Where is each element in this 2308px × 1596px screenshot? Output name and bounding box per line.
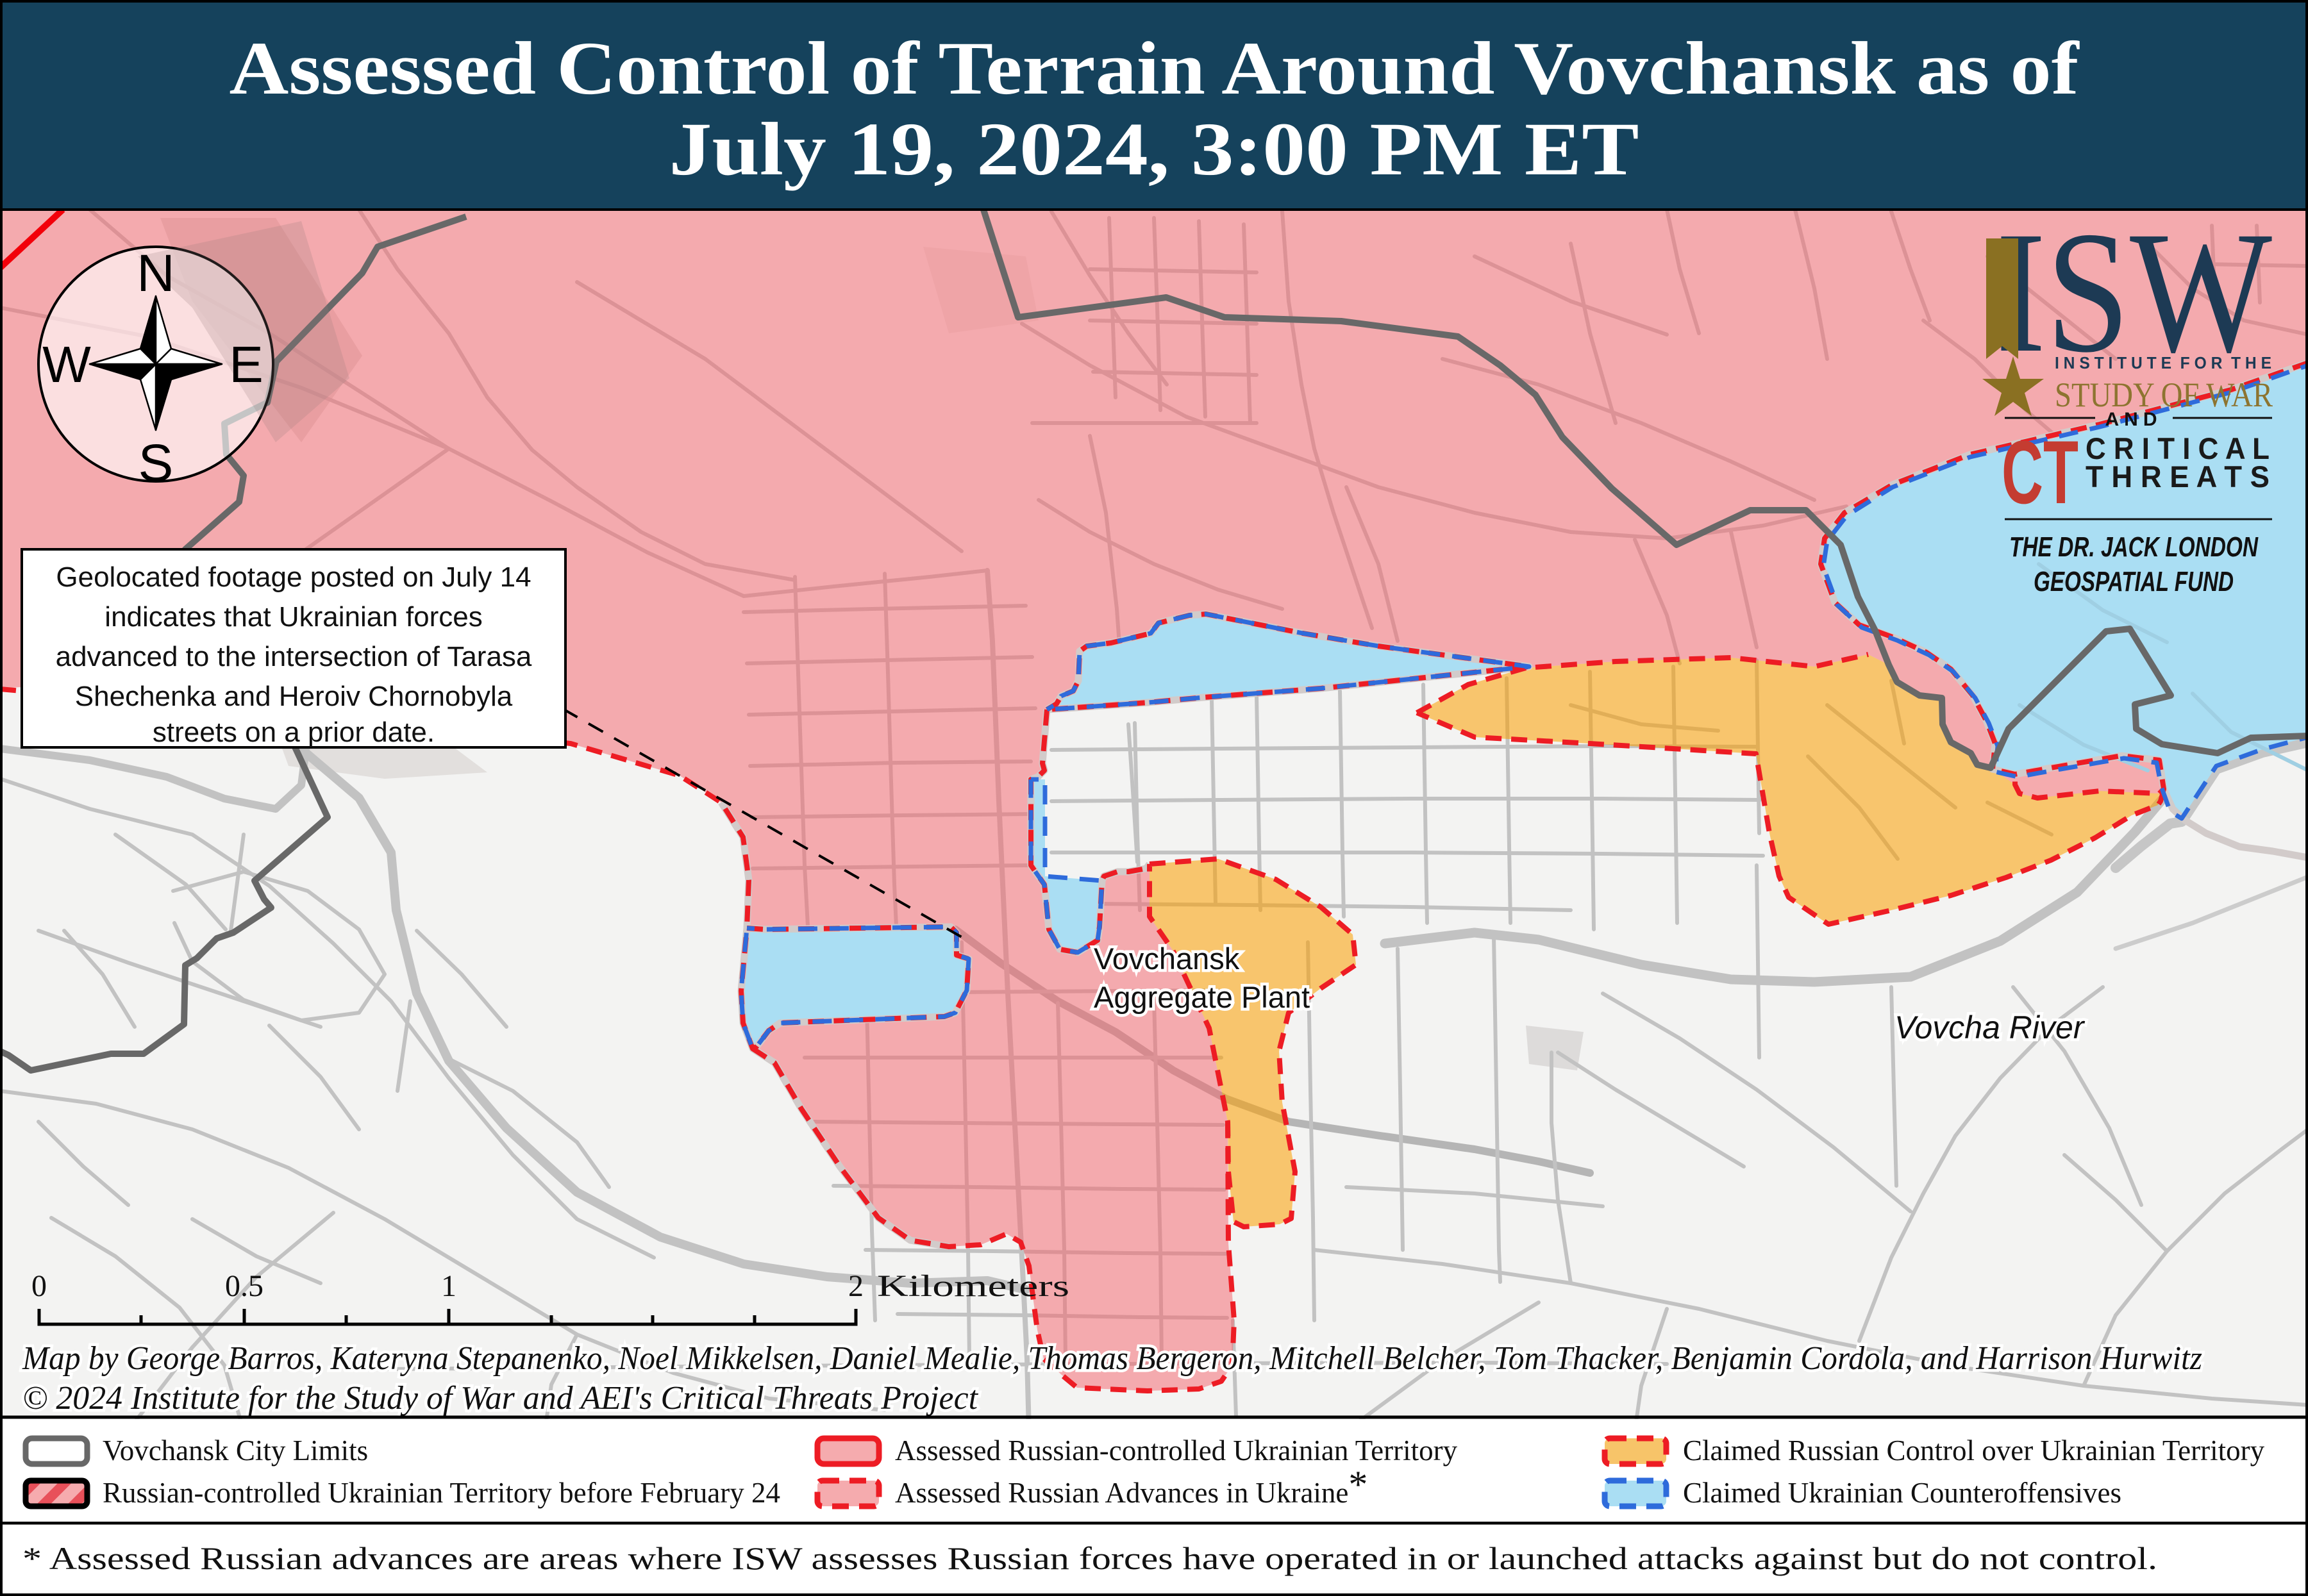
svg-text:Vovchansk: Vovchansk (1094, 942, 1240, 976)
svg-text:N: N (137, 244, 174, 303)
svg-text:Vovchansk City Limits: Vovchansk City Limits (103, 1434, 368, 1467)
svg-text:Assessed Russian-controlled Uk: Assessed Russian-controlled Ukrainian Te… (895, 1434, 1458, 1467)
svg-text:Assessed Control of Terrain Ar: Assessed Control of Terrain Around Vovch… (230, 26, 2080, 110)
svg-text:Claimed Ukrainian Counteroffen: Claimed Ukrainian Counteroffensives (1683, 1477, 2121, 1509)
svg-text:Shechenka and Heroiv Chornobyl: Shechenka and Heroiv Chornobyla (75, 681, 513, 712)
svg-text:streets on a prior date.: streets on a prior date. (153, 717, 435, 748)
svg-text:indicates that Ukrainian force: indicates that Ukrainian forces (105, 601, 482, 633)
svg-text:0.5: 0.5 (225, 1269, 263, 1303)
svg-text:W: W (42, 336, 91, 393)
svg-text:Russian-controlled Ukrainian T: Russian-controlled Ukrainian Territory b… (103, 1477, 780, 1509)
svg-text:Aggregate Plant: Aggregate Plant (1094, 980, 1310, 1014)
svg-text:July 19, 2024, 3:00 PM ET: July 19, 2024, 3:00 PM ET (669, 107, 1639, 191)
svg-text:CT: CT (2002, 422, 2078, 522)
svg-text:Geolocated footage posted on J: Geolocated footage posted on July 14 (56, 561, 531, 593)
svg-text:2: 2 (848, 1269, 864, 1303)
svg-text:THE DR. JACK LONDON: THE DR. JACK LONDON (2009, 531, 2259, 563)
svg-text:advanced to the intersection o: advanced to the intersection of Tarasa (56, 641, 532, 672)
svg-text:Map by George Barros, Kateryna: Map by George Barros, Kateryna Stepanenk… (22, 1340, 2202, 1377)
svg-text:E: E (229, 336, 263, 393)
svg-text:0: 0 (31, 1269, 47, 1303)
svg-text:AND: AND (2105, 409, 2162, 430)
svg-text:GEOSPATIAL FUND: GEOSPATIAL FUND (2034, 566, 2234, 597)
svg-text:Vovcha River: Vovcha River (1894, 1010, 2086, 1045)
svg-text:1: 1 (441, 1269, 456, 1303)
svg-text:STUDY OF WAR: STUDY OF WAR (2055, 376, 2273, 414)
svg-text:S: S (138, 434, 174, 492)
svg-text:* Assessed Russian advances ar: * Assessed Russian advances are areas wh… (22, 1540, 2157, 1576)
svg-text:Kilometers: Kilometers (877, 1269, 1069, 1303)
svg-text:T H R E A T S: T H R E A T S (2086, 460, 2270, 494)
svg-text:Claimed Russian Control over U: Claimed Russian Control over Ukrainian T… (1683, 1434, 2265, 1467)
svg-text:I N S T I T U T E F O R T H: I N S T I T U T E F O R T H E (2055, 353, 2271, 372)
svg-text:© 2024 Institute for the Study: © 2024 Institute for the Study of War an… (22, 1380, 979, 1417)
